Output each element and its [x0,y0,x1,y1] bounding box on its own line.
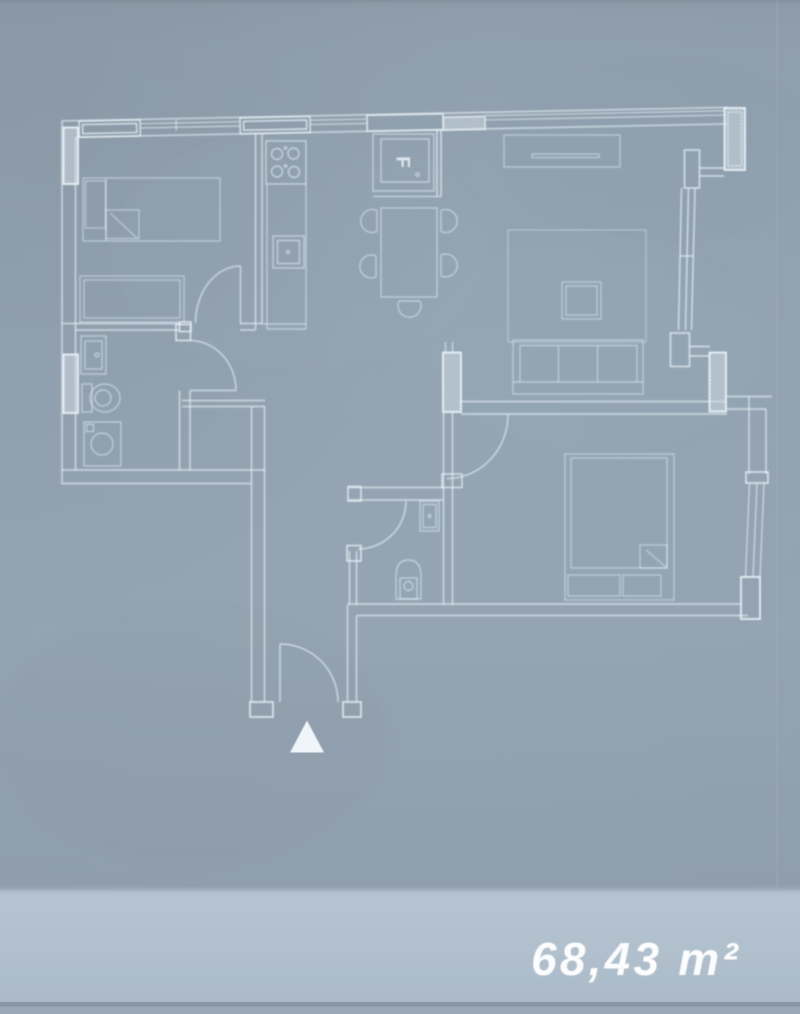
svg-text:68,43 m²: 68,43 m² [531,933,741,985]
svg-text:F: F [392,156,413,168]
